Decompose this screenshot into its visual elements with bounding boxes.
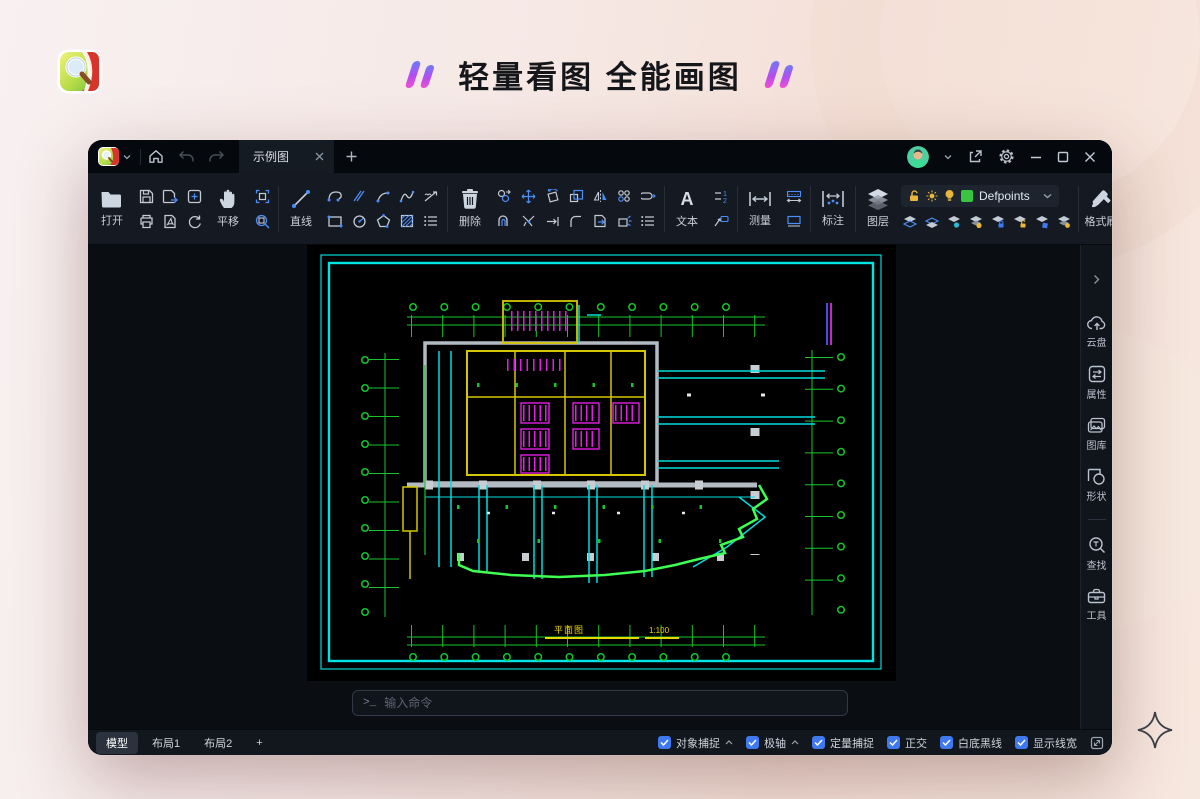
tab-close-icon[interactable] <box>315 150 324 164</box>
toolbar-group-format: 格式刷 颜色 线型— <box>1079 173 1112 244</box>
new-file-icon[interactable] <box>183 185 205 207</box>
statusbar: 模型 布局1 布局2 + 对象捕捉 极轴 定量捕捉 正交 白底黑线 显示线宽 <box>88 729 1112 755</box>
open-folder-icon <box>100 189 124 209</box>
dimension-icon[interactable] <box>783 185 805 207</box>
format-brush-button[interactable]: 格式刷 <box>1084 188 1112 229</box>
block-icon[interactable] <box>589 210 611 232</box>
sidebar-item-label: 图库 <box>1087 437 1107 452</box>
arc-icon[interactable] <box>372 185 394 207</box>
layout-tab-model[interactable]: 模型 <box>96 732 138 754</box>
sidebar-item-gallery[interactable]: 图库 <box>1087 417 1107 452</box>
app-mini-logo-icon <box>98 147 119 166</box>
layer-lock-icon[interactable] <box>989 211 1007 233</box>
sidebar-expander[interactable] <box>1093 259 1100 299</box>
trim-icon[interactable] <box>517 210 539 232</box>
sidebar-item-label: 工具 <box>1087 607 1107 622</box>
chevron-up-icon[interactable] <box>725 740 733 745</box>
export-pdf-icon[interactable] <box>159 210 181 232</box>
shapes-icon <box>1087 468 1106 485</box>
sidebar-item-label: 云盘 <box>1087 334 1107 349</box>
move-icon[interactable] <box>517 185 539 207</box>
toolbox-icon <box>1087 588 1106 604</box>
chevron-down-icon <box>1043 193 1052 199</box>
line-label: 直线 <box>290 213 312 229</box>
spline-icon[interactable] <box>396 185 418 207</box>
save-as-icon[interactable] <box>159 185 181 207</box>
measure-area-icon[interactable] <box>783 210 805 232</box>
avatar-chevron-down-icon[interactable] <box>944 154 952 160</box>
pan-hand-icon <box>218 188 238 210</box>
mirror-icon[interactable] <box>589 185 611 207</box>
polyline-icon[interactable] <box>324 185 346 207</box>
annotate-button[interactable]: 标注 <box>816 189 850 228</box>
command-input[interactable] <box>384 696 837 710</box>
erase-button[interactable]: 删除 <box>453 188 487 229</box>
sidebar-item-shapes[interactable]: 形状 <box>1087 468 1107 503</box>
avatar[interactable] <box>907 146 929 168</box>
main-toolbar: 打开 平移 直线 <box>88 173 1112 245</box>
erase-trash-icon <box>460 188 480 210</box>
refresh-icon[interactable] <box>183 210 205 232</box>
rotate-icon[interactable] <box>541 185 563 207</box>
svg-text:A: A <box>681 189 694 209</box>
fullscreen-icon[interactable] <box>1090 736 1104 750</box>
measure-label: 测量 <box>749 212 771 228</box>
sidebar-item-label: 查找 <box>1087 557 1107 572</box>
measure-button[interactable]: 测量 <box>743 189 777 228</box>
toggle-lineweight[interactable]: 显示线宽 <box>1015 735 1077 751</box>
line-button[interactable]: 直线 <box>284 188 318 229</box>
layout-tab-2[interactable]: 布局2 <box>194 732 242 754</box>
layers-icon <box>866 188 890 210</box>
double-line-icon[interactable] <box>348 185 370 207</box>
toolbar-group-measure: 测量 <box>738 173 810 244</box>
checkbox-checked-icon <box>887 736 900 749</box>
home-button[interactable] <box>141 140 171 173</box>
layer-button[interactable]: 图层 <box>861 188 895 229</box>
layer-show-icon[interactable] <box>945 211 963 233</box>
fillet-icon[interactable] <box>565 210 587 232</box>
undo-button[interactable] <box>171 140 201 173</box>
numbered-list-icon[interactable]: 12 <box>710 185 732 207</box>
measure-length-icon <box>748 189 772 209</box>
more-modify-icon[interactable] <box>637 210 659 232</box>
minimize-button[interactable] <box>1030 151 1042 163</box>
toggle-object-snap[interactable]: 对象捕捉 <box>658 735 733 751</box>
format-brush-icon <box>1089 188 1112 210</box>
layer-settings-icon[interactable] <box>1055 211 1073 233</box>
text-label: 文本 <box>676 213 698 229</box>
toolbar-group-draw: 直线 <box>279 173 447 244</box>
layer-freeze-icon[interactable] <box>1033 211 1051 233</box>
zoom-window-icon[interactable] <box>251 210 273 232</box>
rectangle-icon[interactable] <box>324 210 346 232</box>
layer-up-icon[interactable] <box>923 211 941 233</box>
gallery-icon <box>1087 417 1106 434</box>
open-label: 打开 <box>101 212 123 228</box>
sidebar-item-properties[interactable]: 属性 <box>1087 365 1107 401</box>
checkbox-checked-icon <box>940 736 953 749</box>
checkbox-checked-icon <box>746 736 759 749</box>
format-brush-label: 格式刷 <box>1085 213 1113 229</box>
sidebar-item-label: 形状 <box>1087 488 1107 503</box>
svg-text:1: 1 <box>723 191 727 198</box>
array-icon[interactable] <box>613 185 635 207</box>
text-button[interactable]: A 文本 <box>670 188 704 229</box>
fit-view-icon[interactable] <box>251 185 273 207</box>
document-tab-title: 示例图 <box>253 148 289 165</box>
properties-icon <box>1088 365 1106 383</box>
print-icon[interactable] <box>135 210 157 232</box>
sidebar-item-find[interactable]: 查找 <box>1087 536 1107 572</box>
explode-icon[interactable] <box>613 210 635 232</box>
text-a-icon: A <box>676 188 698 210</box>
more-draw-icon[interactable] <box>420 210 442 232</box>
annotate-label: 标注 <box>822 212 844 228</box>
layer-unlock2-icon[interactable] <box>1011 211 1029 233</box>
layout-tab-1[interactable]: 布局1 <box>142 732 190 754</box>
settings-gear-icon[interactable] <box>998 148 1015 165</box>
toolbar-group-annotate: 标注 <box>811 173 855 244</box>
toolbar-group-modify: 删除 <box>448 173 664 244</box>
cloud-upload-icon <box>1087 315 1107 331</box>
leader-icon[interactable] <box>710 210 732 232</box>
chevron-up-icon[interactable] <box>791 740 799 745</box>
layer-dropdown-value: Defpoints <box>979 189 1037 203</box>
save-icon[interactable] <box>135 185 157 207</box>
toggle-polar[interactable]: 极轴 <box>746 735 799 751</box>
chevron-down-icon <box>123 154 131 160</box>
command-prompt-icon: >_ <box>363 697 376 709</box>
circle-icon[interactable] <box>348 210 370 232</box>
right-sidebar: 云盘 属性 图库 形状 查找 工具 <box>1080 245 1112 729</box>
erase-label: 删除 <box>459 213 481 229</box>
app-menu-button[interactable] <box>88 140 140 173</box>
open-button[interactable]: 打开 <box>95 189 129 228</box>
extend-icon[interactable] <box>541 210 563 232</box>
checkbox-checked-icon <box>1015 736 1028 749</box>
hero-slash-left <box>405 61 437 88</box>
layer-tools-row <box>901 211 1073 233</box>
maximize-button[interactable] <box>1057 151 1069 163</box>
pan-label: 平移 <box>217 213 239 229</box>
checkbox-checked-icon <box>812 736 825 749</box>
polygon-icon[interactable] <box>372 210 394 232</box>
copy-icon[interactable] <box>493 185 515 207</box>
sidebar-item-label: 属性 <box>1087 386 1107 401</box>
cad-drawing[interactable]: 平面图 1:100 <box>307 245 896 681</box>
redo-button[interactable] <box>201 140 231 173</box>
share-icon[interactable] <box>967 149 983 165</box>
hero-banner: 轻量看图 全能画图 <box>0 48 1200 100</box>
layer-bulb-icon <box>944 189 955 202</box>
layer-hide-icon[interactable] <box>967 211 985 233</box>
offset-icon[interactable] <box>493 210 515 232</box>
hero-slash-right <box>763 61 795 88</box>
scale-icon[interactable] <box>565 185 587 207</box>
layer-unlock-icon <box>908 190 920 202</box>
layer-color-swatch <box>961 190 973 202</box>
window-titlebar: 示例图 <box>88 140 1112 173</box>
toolbar-group-layer: 图层 Defpoints <box>856 173 1078 244</box>
pan-button[interactable]: 平移 <box>211 188 245 229</box>
toggle-snap[interactable]: 定量捕捉 <box>812 735 874 751</box>
hatch-icon[interactable] <box>396 210 418 232</box>
line-icon <box>290 188 312 210</box>
toolbar-group-file: 打开 平移 <box>90 173 278 244</box>
layer-sun-icon <box>926 190 938 202</box>
close-button[interactable] <box>1084 151 1096 163</box>
drawing-canvas[interactable]: 平面图 1:100 >_ <box>88 245 1080 729</box>
divider <box>1088 519 1106 520</box>
layer-label: 图层 <box>867 213 889 229</box>
hero-title: 轻量看图 全能画图 <box>458 52 742 97</box>
toggle-ortho[interactable]: 正交 <box>887 735 927 751</box>
annotate-icon <box>821 189 845 209</box>
document-tab[interactable]: 示例图 <box>239 140 334 173</box>
app-window: 示例图 打开 <box>88 140 1112 755</box>
find-text-icon <box>1088 536 1106 554</box>
layer-dropdown[interactable]: Defpoints <box>901 185 1059 207</box>
command-bar[interactable]: >_ <box>352 690 848 716</box>
stretch-icon[interactable] <box>637 185 659 207</box>
revision-cloud-icon[interactable] <box>420 185 442 207</box>
add-layout-button[interactable]: + <box>246 734 272 752</box>
drawing-caption: 平面图 <box>554 625 584 635</box>
new-tab-button[interactable] <box>334 140 368 173</box>
checkbox-checked-icon <box>658 736 671 749</box>
drawing-scale: 1:100 <box>649 626 670 635</box>
toggle-white-background[interactable]: 白底黑线 <box>940 735 1002 751</box>
sidebar-item-cloud[interactable]: 云盘 <box>1087 315 1107 349</box>
sparkle-icon <box>1135 706 1175 754</box>
sidebar-item-tools[interactable]: 工具 <box>1087 588 1107 622</box>
svg-text:2: 2 <box>723 198 727 203</box>
toolbar-group-text: A 文本 12 <box>665 173 737 244</box>
layer-down-icon[interactable] <box>901 211 919 233</box>
